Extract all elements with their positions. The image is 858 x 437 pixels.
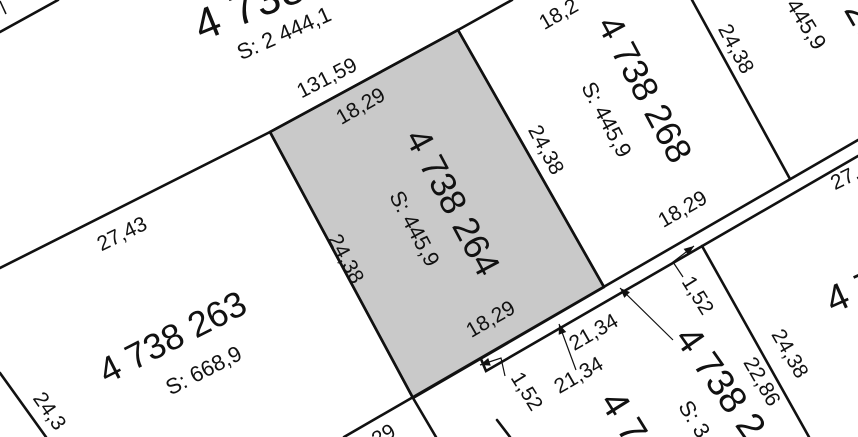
boundary-corner-stub [0, 1, 6, 14]
cadastral-map[interactable]: 4 738 S: 2 444,1 4 738 263 S: 668,9 4 73… [0, 0, 858, 437]
